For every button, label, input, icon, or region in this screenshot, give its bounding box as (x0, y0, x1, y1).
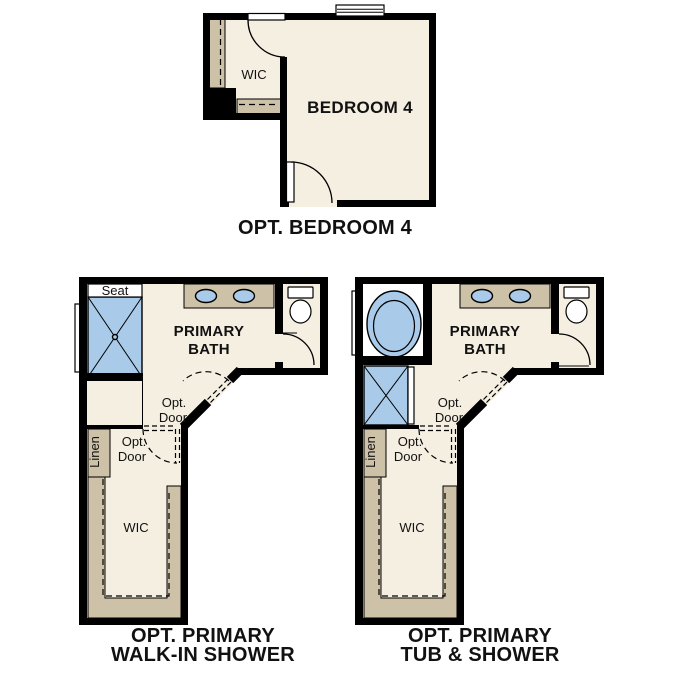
seat-label: Seat (102, 283, 129, 298)
plan-opt-bedroom4: WIC BEDROOM 4 OPT. BEDROOM 4 (203, 5, 436, 239)
tub-icon (363, 284, 423, 357)
opt-door-wic-label-1: Opt. (122, 434, 147, 449)
tubshower-caption-2: TUB & SHOWER (400, 644, 559, 666)
bedroom4-caption: OPT. BEDROOM 4 (238, 217, 413, 239)
wic-label: WIC (123, 520, 148, 535)
plan-opt-primary-tub-shower: PRIMARY BATH Opt. Door Opt. Door Linen W… (352, 277, 604, 666)
vanity-sink-icon (184, 284, 274, 308)
walkin-caption-2: WALK-IN SHOWER (111, 644, 295, 666)
opt-door-bath-label-1: Opt. (162, 395, 187, 410)
shower-glass (408, 367, 414, 424)
plan-opt-primary-walk-in-shower: Seat PRIMARY BATH Opt. Door Opt. Door Li… (75, 277, 328, 666)
linen-label: Linen (363, 436, 378, 468)
primary-bath-label-2: BATH (464, 341, 506, 358)
primary-bath-label-2: BATH (188, 341, 230, 358)
opt-door-bath-label-1: Opt. (438, 395, 463, 410)
bedroom4-window-icon (336, 5, 384, 16)
floorplan-drawing: WIC BEDROOM 4 OPT. BEDROOM 4 (0, 0, 687, 687)
floorplan-sheet: WIC BEDROOM 4 OPT. BEDROOM 4 (0, 0, 687, 687)
opt-door-wic-label-1: Opt. (398, 434, 423, 449)
opt-door-bath-label-2: Door (435, 410, 464, 425)
vanity-sink-icon (460, 284, 550, 308)
walk-in-shower-icon (88, 297, 142, 377)
toilet-icon (288, 287, 313, 323)
linen-label: Linen (87, 436, 102, 468)
bedroom4-room-label: BEDROOM 4 (307, 98, 413, 117)
opt-door-wic-label-2: Door (394, 449, 423, 464)
primary-bath-label-1: PRIMARY (174, 323, 245, 340)
opt-door-wic-label-2: Door (118, 449, 147, 464)
shower-icon (364, 366, 414, 425)
wic-label: WIC (241, 67, 266, 82)
primary-bath-label-1: PRIMARY (450, 323, 521, 340)
wic-label: WIC (399, 520, 424, 535)
opt-door-bath-label-2: Door (159, 410, 188, 425)
toilet-icon (564, 287, 589, 323)
plumbing-chase (203, 88, 236, 120)
